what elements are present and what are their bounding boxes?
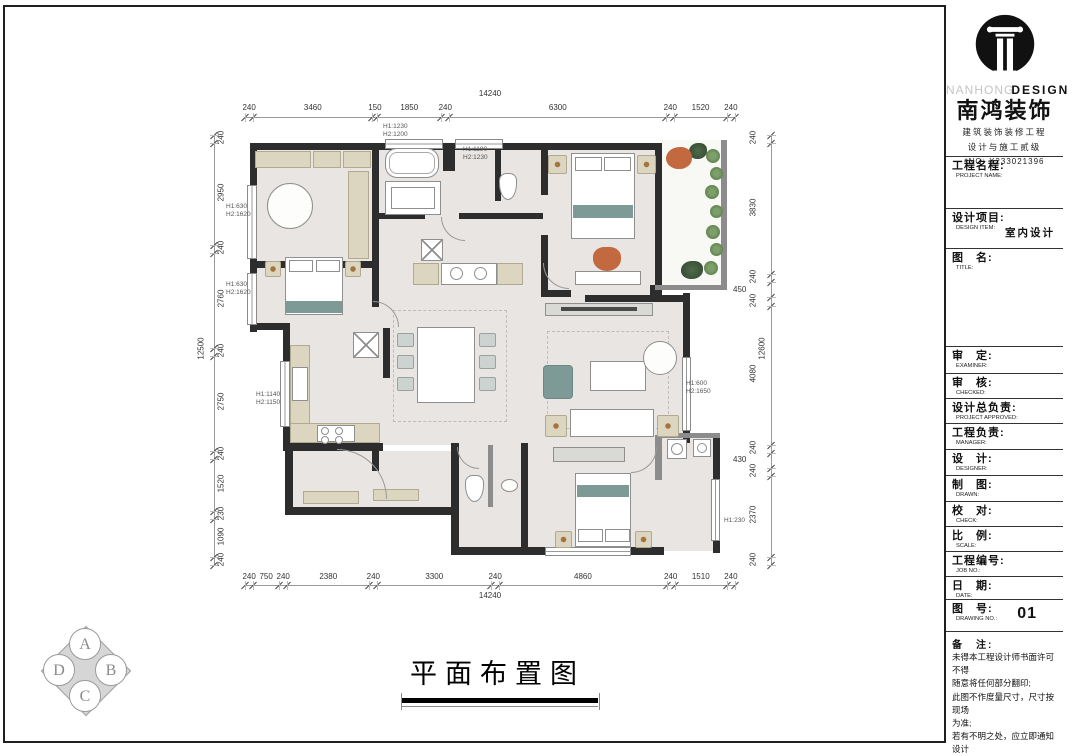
wall-master-left-upper	[541, 143, 548, 195]
wall-kitchen-right	[383, 328, 390, 378]
dim-ext	[727, 581, 728, 590]
logo-text-gray: NANHONG	[946, 83, 1014, 97]
floor-plan	[245, 135, 735, 565]
window-height-label: H1:1190 H2:1230	[463, 146, 488, 162]
flue	[353, 332, 379, 358]
pillow	[578, 529, 603, 542]
dim-ext	[675, 581, 676, 590]
field-label-en: DESIGNER:	[956, 465, 1033, 471]
field-label-zh: 设计项目:	[952, 212, 1063, 224]
wall-hall-living	[541, 290, 571, 297]
remarks-lines: 未得本工程设计师书面许可不得随意将任何部分翻印;此图不作度量尺寸，尺寸按现场为准…	[952, 651, 1057, 756]
sofa	[570, 409, 654, 437]
window-bay	[711, 479, 720, 541]
nightstand	[555, 531, 572, 548]
field-row: 工程编号:JOB NO.:	[946, 552, 1063, 577]
coffee-table	[590, 361, 646, 391]
dim-value: 3460	[295, 103, 331, 112]
nightstand	[635, 531, 652, 548]
window-height-label: H1:630 H2:1620	[226, 203, 251, 219]
dim-ext	[674, 113, 675, 122]
dimension-line-bottom: 2407502402380240330024048602401510240142…	[245, 570, 735, 606]
field-row: 制 图:DRAWN:	[946, 476, 1063, 502]
dim-total: 12500	[197, 319, 206, 379]
wall-kitchen-bottom	[283, 443, 383, 451]
utility-basin	[697, 443, 707, 453]
dining-chair	[397, 333, 414, 347]
nightstand	[548, 155, 567, 174]
company-logo-icon	[972, 13, 1038, 79]
dim-total: 14240	[460, 591, 520, 600]
remark-line: 此图不作度量尺寸，尺寸按现场	[952, 691, 1057, 717]
compass-letter-A: A	[69, 628, 101, 660]
field-row: 设计项目:DESIGN ITEM:室内设计	[946, 209, 1063, 249]
dining-table	[417, 327, 475, 403]
burner	[335, 427, 343, 435]
dim-value: 240	[217, 227, 226, 267]
dim-ext	[245, 113, 246, 122]
wall-bath2-inner-divider	[488, 445, 493, 507]
field-row: 审 核:CHECKED:	[946, 374, 1063, 399]
wall-balcony-bottom	[655, 285, 727, 290]
dim-ext	[767, 557, 776, 558]
field-label-zh: 日 期:	[952, 580, 1063, 592]
wardrobe3	[553, 447, 625, 462]
remarks-label: 备 注:	[952, 636, 1057, 651]
field-row: 图 号:DRAWING NO.:01	[946, 600, 1063, 632]
study-cabinet	[313, 151, 341, 168]
wall-top-right	[545, 143, 662, 150]
dim-ext	[377, 113, 378, 122]
dim-ext	[449, 113, 450, 122]
field-label-zh: 比 例:	[952, 530, 1063, 542]
dim-ext	[727, 113, 728, 122]
dim-value: 6300	[540, 103, 576, 112]
remark-line: 随意将任何部分翻印;	[952, 677, 1057, 690]
bed3-runner	[577, 485, 629, 497]
dim-line	[214, 135, 215, 565]
bathtub	[385, 148, 439, 178]
dim-ext	[735, 113, 736, 122]
nightstand	[265, 261, 281, 277]
washbasin	[501, 479, 518, 492]
basin	[450, 267, 463, 280]
basin	[474, 267, 487, 280]
title-tick-left	[401, 693, 402, 710]
wall-study-divider	[372, 143, 379, 267]
window-height-label: H1:1230 H2:1200	[383, 123, 408, 139]
dim-ext	[767, 274, 776, 275]
company-line2: 设计与施工贰级	[946, 141, 1063, 153]
round-side-table	[643, 341, 677, 375]
title-block-fields: 工程名程:PROJECT NAME:设计项目:DESIGN ITEM:室内设计图…	[946, 157, 1063, 632]
pillow	[316, 260, 340, 272]
dim-ext	[377, 581, 378, 590]
dim-ext	[767, 282, 776, 283]
field-label-zh: 设计总负责:	[952, 402, 1063, 414]
field-row: 设 计:DESIGNER:	[946, 450, 1063, 476]
dim-ext	[666, 113, 667, 122]
desk-chair-orange	[593, 247, 621, 271]
wall-entry-bottom	[285, 507, 459, 515]
wall-entry-left	[285, 443, 293, 515]
dim-value: 3300	[416, 572, 452, 581]
field-row: 设计总负责:PROJECT APPROVED:	[946, 399, 1063, 424]
title-underline-bar	[402, 698, 598, 703]
compass-symbol: ABCD	[35, 620, 135, 720]
kitchen-sink	[292, 367, 308, 401]
tv	[561, 307, 637, 311]
drawing-title-text: 平面布置图	[385, 652, 610, 691]
dim-ext	[279, 581, 280, 590]
dim-value: 240	[749, 118, 758, 158]
drawing-sheet: 240346015018502406300240152024014240 240…	[0, 0, 1080, 756]
bed2-runner	[286, 301, 342, 313]
wall-bath2-right	[521, 443, 528, 551]
remark-line: 为准;	[952, 717, 1057, 730]
compass-letter-D: D	[43, 654, 75, 686]
dim-value: 3830	[749, 187, 758, 227]
dim-ext	[767, 445, 776, 446]
vanity-cabinet	[497, 263, 523, 285]
field-row: 审 定:EXAMINER:	[946, 347, 1063, 374]
drawing-title: 平面布置图	[385, 652, 610, 714]
dim-value: 4080	[749, 354, 758, 394]
window-height-label: H1:230	[724, 517, 745, 525]
field-label-zh: 审 定:	[952, 350, 1063, 362]
dim-ext	[441, 113, 442, 122]
bedroom-bench	[575, 271, 641, 285]
window-study	[247, 185, 257, 259]
dim-value: 240	[217, 118, 226, 158]
dim-ext	[369, 581, 370, 590]
dim-value: 240	[355, 572, 391, 581]
dim-ext	[735, 581, 736, 590]
field-label-en: SCALE:	[956, 542, 1033, 548]
field-label-zh: 校 对:	[952, 505, 1063, 517]
dim-value: 240	[749, 280, 758, 320]
window-height-label: H1:600 H2:1650	[686, 380, 711, 396]
dim-ext	[287, 581, 288, 590]
brand-area: NANHONGDESIGN 南鸿装饰 建筑装饰装修工程 设计与施工贰级 *NO:…	[946, 5, 1063, 157]
washer-drum	[671, 443, 683, 455]
title-tick-right	[599, 693, 600, 710]
sofa-side-table	[545, 415, 567, 437]
nightstand	[345, 261, 361, 277]
dim-ext	[253, 113, 254, 122]
dim-ext	[767, 297, 776, 298]
laundry-box	[421, 239, 443, 261]
field-row: 图 名:TITLE:	[946, 249, 1063, 347]
study-cabinet	[343, 151, 371, 168]
planter-orange	[666, 147, 692, 169]
title-block: NANHONGDESIGN 南鸿装饰 建筑装饰装修工程 设计与施工贰级 *NO:…	[944, 5, 1063, 743]
field-label-zh: 图 号:	[952, 603, 1063, 615]
dim-total: 12600	[758, 319, 767, 379]
dim-value: 1850	[391, 103, 427, 112]
dim-value: 240	[749, 450, 758, 490]
plant	[706, 149, 720, 163]
dim-value: 240	[265, 572, 301, 581]
dimension-line-right: 2403830240450240408024043024023702401260…	[737, 135, 777, 565]
dim-value: 2950	[217, 172, 226, 212]
field-label-zh: 图 名:	[952, 252, 1063, 264]
dim-ext	[667, 581, 668, 590]
field-label-en: CHECKED:	[956, 389, 1033, 395]
dim-value: 4860	[565, 572, 601, 581]
window-kitchen	[280, 361, 290, 427]
field-label-zh: 工程编号:	[952, 555, 1063, 567]
armchair	[543, 365, 573, 399]
dim-value: 2760	[217, 279, 226, 319]
dim-value: 2750	[217, 382, 226, 422]
dining-chair	[479, 333, 496, 347]
window-height-label: H1:1140 H2:1150	[256, 391, 280, 407]
dim-ext	[767, 565, 776, 566]
compass-letter-C: C	[69, 680, 101, 712]
wall-bedroom3-right	[655, 435, 662, 480]
burner	[335, 436, 343, 444]
dim-value: 240	[477, 572, 513, 581]
study-cabinet	[255, 151, 311, 168]
dimension-line-top: 240346015018502406300240152024014240	[245, 88, 735, 128]
dim-line	[245, 117, 735, 118]
pillow	[575, 157, 602, 171]
field-row: 工程负责:MANAGER:	[946, 424, 1063, 450]
dim-ext	[767, 476, 776, 477]
dim-ext	[245, 581, 246, 590]
dim-value: 240	[217, 539, 226, 579]
dim-value: 240	[713, 103, 749, 112]
dim-ext	[491, 581, 492, 590]
wall-bath-bottom-b	[459, 213, 543, 219]
bath-vanity-inner	[391, 187, 435, 209]
logo-text-black: DESIGN	[1011, 83, 1069, 97]
field-label-en: MANAGER:	[956, 439, 1033, 445]
field-label-zh: 工程负责:	[952, 427, 1063, 439]
dim-ext	[767, 306, 776, 307]
dining-chair	[479, 377, 496, 391]
pillow	[604, 157, 631, 171]
dim-ext	[767, 143, 776, 144]
dim-value: 2380	[310, 572, 346, 581]
plant	[710, 243, 723, 256]
study-round-table	[267, 183, 313, 229]
burner	[321, 436, 329, 444]
field-label-en: JOB NO.:	[956, 567, 1033, 573]
nightstand	[637, 155, 656, 174]
dim-value: 2370	[749, 495, 758, 535]
bed-runner	[573, 205, 633, 218]
plant	[704, 261, 718, 275]
field-label-en: EXAMINER:	[956, 362, 1033, 368]
dim-value: 240	[749, 539, 758, 579]
column-bath	[443, 143, 455, 171]
window-bedroom3	[545, 547, 631, 556]
dim-ext	[253, 581, 254, 590]
pillow	[605, 529, 630, 542]
burner	[321, 427, 329, 435]
field-row: 校 对:CHECK:	[946, 502, 1063, 527]
title-underline-thin	[402, 706, 598, 707]
sofa-side-table	[657, 415, 679, 437]
dim-value: 240	[217, 331, 226, 371]
compass-letter-B: B	[95, 654, 127, 686]
dimension-line-left: 2402950240276024027502401520230109024012…	[195, 135, 237, 565]
dim-total: 14240	[460, 89, 520, 98]
dim-value: 240	[713, 572, 749, 581]
dim-ext	[499, 581, 500, 590]
window-height-label: H1:630 H2:1620	[226, 281, 251, 297]
dim-line	[771, 135, 772, 565]
company-line1: 建筑装饰装修工程	[946, 126, 1063, 138]
dim-value: 150	[357, 103, 393, 112]
logo-wordmark: NANHONGDESIGN	[946, 81, 1063, 99]
dim-value: 240	[231, 103, 267, 112]
remarks: 备 注: 未得本工程设计师书面许可不得随意将任何部分翻印;此图不作度量尺寸，尺寸…	[946, 632, 1063, 756]
dim-ext	[767, 468, 776, 469]
dim-ext	[767, 135, 776, 136]
study-wardrobe	[348, 171, 369, 259]
field-label-zh: 工程名程:	[952, 160, 1063, 172]
dim-value: 240	[427, 103, 463, 112]
company-name: 南鸿装饰	[946, 99, 1063, 123]
dining-chair	[397, 355, 414, 369]
remark-line: 未得本工程设计师书面许可不得	[952, 651, 1057, 677]
field-row: 日 期:DATE:	[946, 577, 1063, 600]
field-label-en: CHECK:	[956, 517, 1033, 523]
remark-line: 若有不明之处，应立即通知设计	[952, 730, 1057, 756]
field-label-zh: 制 图:	[952, 479, 1063, 491]
field-row: 比 例:SCALE:	[946, 527, 1063, 552]
floor-bay	[662, 477, 718, 551]
field-label-en: PROJECT APPROVED:	[956, 414, 1033, 420]
dim-ext	[767, 453, 776, 454]
dining-chair	[479, 355, 496, 369]
field-label-zh: 审 核:	[952, 377, 1063, 389]
plant	[710, 167, 723, 180]
dining-chair	[397, 377, 414, 391]
vanity-cabinet	[413, 263, 439, 285]
plant-dark	[681, 261, 703, 279]
field-label-en: DRAWN:	[956, 491, 1033, 497]
field-label-zh: 设 计:	[952, 453, 1063, 465]
plant	[710, 205, 723, 218]
field-label-en: TITLE:	[956, 264, 1033, 270]
field-label-en: DATE:	[956, 592, 1033, 598]
wall-master-right	[655, 143, 662, 295]
field-label-en: PROJECT NAME:	[956, 172, 1033, 178]
plant	[705, 185, 719, 199]
field-row: 工程名程:PROJECT NAME:	[946, 157, 1063, 209]
wall-living-top	[585, 295, 685, 302]
pillow	[289, 260, 313, 272]
plant	[706, 225, 720, 239]
field-value: 室内设计	[1005, 225, 1055, 240]
field-value: 01	[1017, 605, 1037, 623]
